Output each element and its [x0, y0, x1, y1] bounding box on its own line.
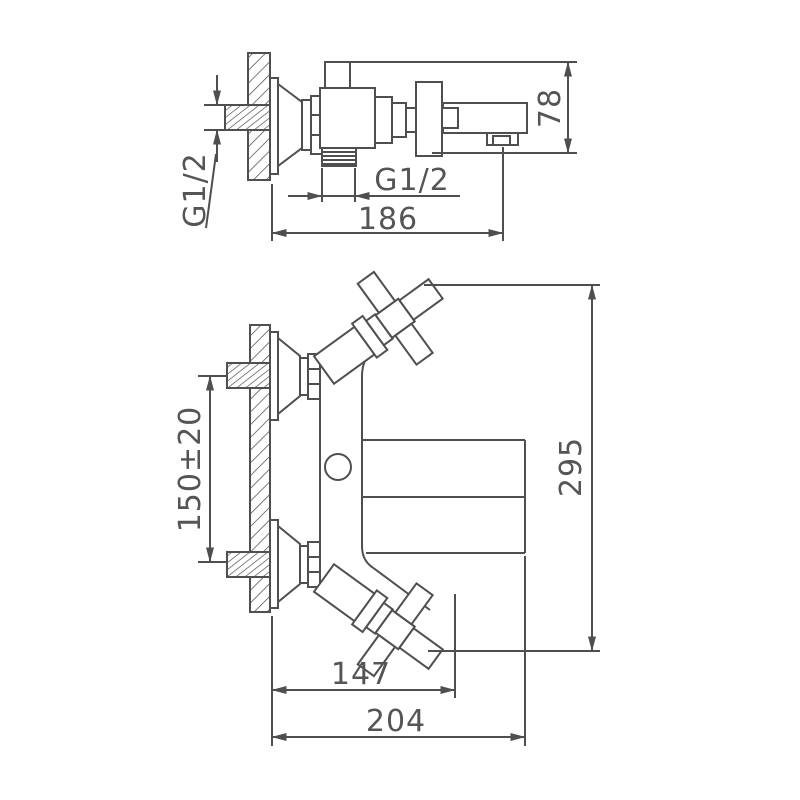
diverter-port: [325, 62, 350, 88]
supply-pipe-bottom: [227, 552, 270, 577]
height-dim-label: 78: [533, 88, 568, 128]
cross-handle: [416, 82, 458, 156]
body-hole: [325, 454, 351, 480]
overall-height-label: 295: [554, 437, 589, 497]
aerator-screen: [493, 136, 510, 145]
inlet-thread-label: G1/2: [178, 152, 213, 228]
escutcheon: [270, 78, 322, 174]
threaded-outlet: [322, 148, 356, 166]
inlet-spacing-label: 150±20: [173, 406, 208, 533]
escutcheon-top: [270, 332, 320, 420]
supply-pipe: [225, 105, 270, 130]
valve-step: [375, 97, 392, 143]
faucet-technical-drawing: G1/2 78 G1/2 186 150±20 295 147 204: [0, 0, 800, 800]
body-thread-label: G1/2: [374, 163, 450, 198]
faucet-body: [320, 62, 416, 166]
reach-dim-label: 186: [358, 202, 418, 237]
valve-step: [392, 103, 406, 137]
spout-reach-label: 147: [331, 657, 391, 692]
overall-reach-label: 204: [366, 704, 426, 739]
valve-stem: [406, 108, 416, 132]
supply-pipe-top: [227, 363, 270, 388]
escutcheon-bottom: [270, 520, 320, 608]
front-view: [198, 248, 600, 746]
spout: [363, 440, 525, 553]
technical-drawing-page: G1/2 78 G1/2 186 150±20 295 147 204: [0, 0, 800, 800]
